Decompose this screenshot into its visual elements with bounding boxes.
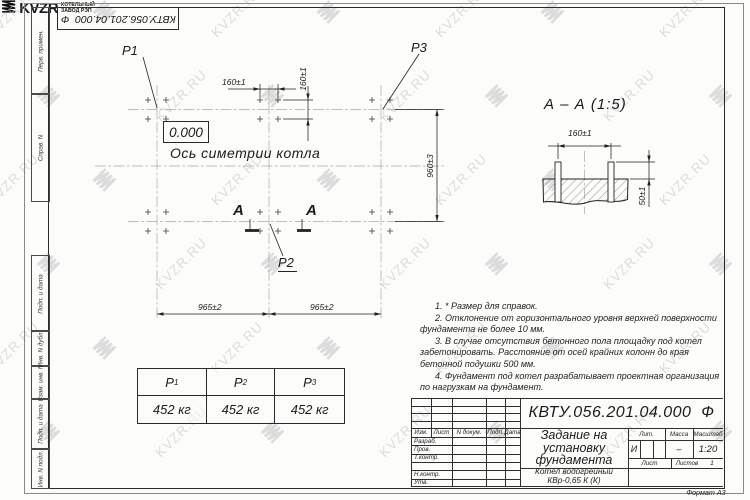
dim-160-vertical: 160±1 [298, 64, 308, 94]
col-n-dokum: N докум. [452, 429, 486, 437]
dim-965-left: 965±2 [198, 302, 222, 312]
scale-value: 1:20 [693, 441, 723, 457]
frame-label-podp-data-2: Подп. и дата [31, 398, 50, 450]
section-letter-right: А [306, 202, 317, 219]
frame-label-vzam-inv: Взам. инв. N [31, 365, 50, 400]
load-table-value-p2: 452 кг [207, 396, 276, 423]
dim-160-horizontal: 160±1 [222, 77, 246, 87]
note-item: 1. * Размер для справок. [420, 301, 723, 313]
sheet-label: Лист [628, 459, 671, 468]
load-table-header-p1: P1 [138, 369, 207, 396]
frame-label-podp-data-1: Подп. и дата [31, 255, 50, 332]
section-dim-50: 50±1 [637, 181, 647, 211]
load-table-value-p1: 452 кг [138, 396, 207, 423]
title-block-document-title: Задание на установку фундамента [521, 429, 627, 467]
load-table: P1 P2 P3 452 кг 452 кг 452 кг [137, 368, 345, 424]
load-table-header-p3: P3 [275, 369, 344, 396]
point-p2-label: P2 [278, 255, 297, 272]
lit-label: Лит. [628, 429, 665, 439]
elevation-mark: 0.000 [163, 121, 209, 143]
row-utv: Утв. [412, 479, 453, 486]
top-designation-stamp: КВТУ.056.201.04.000 Ф [57, 7, 179, 30]
row-prov: Пров. [412, 446, 453, 453]
lit-value: И [628, 441, 640, 457]
title-block-designation: КВТУ.056.201.04.000 Ф [521, 399, 722, 427]
row-tkontr: Т.контр. [412, 454, 453, 461]
section-view-title: А – А (1:5) [544, 96, 627, 113]
note-item: 3. В случае отсутствия бетонного пола пл… [420, 336, 723, 371]
frame-label-inv-podl: Инв. N подл. [31, 448, 50, 489]
sheets-label: Листов [671, 459, 703, 468]
top-designation-text: КВТУ.056.201.04.000 Ф [61, 13, 176, 25]
scale-label: Масштаб [693, 429, 723, 439]
frame-label-inv-dubl: Инв. N дубл. [31, 330, 50, 367]
note-item: 4. Фундамент под котел разрабатывает про… [420, 371, 723, 394]
row-nkontr: Н.контр. [412, 471, 453, 478]
mass-value: – [665, 441, 693, 457]
sheets-value: 1 [703, 459, 721, 468]
section-letter-left: А [233, 202, 244, 219]
dim-960: 960±3 [425, 151, 435, 181]
title-block-product-name: Котел водогрейный КВр-0,65 К (К) [521, 468, 627, 486]
frame-label-sprav-n: Справ. N [31, 93, 50, 202]
boiler-symmetry-axis-label: Ось симетрии котла [170, 145, 320, 161]
drawing-sheet: KVZR.RUKVZR.RUKVZR.RUKVZR.RUKVZR.RUKVZR.… [0, 0, 750, 500]
load-table-header-p2: P2 [207, 369, 276, 396]
technical-notes: 1. * Размер для справок. 2. Отклонение о… [420, 301, 723, 394]
format-label: Формат А3 [676, 488, 736, 497]
col-data: Дата [505, 429, 520, 437]
note-item: 2. Отклонение от горизонтального уровня … [420, 313, 723, 336]
row-razrab: Разраб. [412, 438, 453, 445]
mass-label: Масса [665, 429, 693, 439]
col-izm: Изм. [411, 429, 431, 437]
load-table-value-p3: 452 кг [275, 396, 344, 423]
point-p3-label: P3 [411, 40, 427, 55]
col-podp: Подп. [486, 429, 505, 437]
section-dim-160: 160±1 [568, 128, 592, 138]
dim-965-right: 965±2 [310, 302, 334, 312]
row-empty [412, 462, 453, 469]
point-p1-label: P1 [122, 43, 138, 58]
frame-label-perv-primen: Перв. примен. [31, 7, 50, 95]
col-list: Лист [431, 429, 452, 437]
